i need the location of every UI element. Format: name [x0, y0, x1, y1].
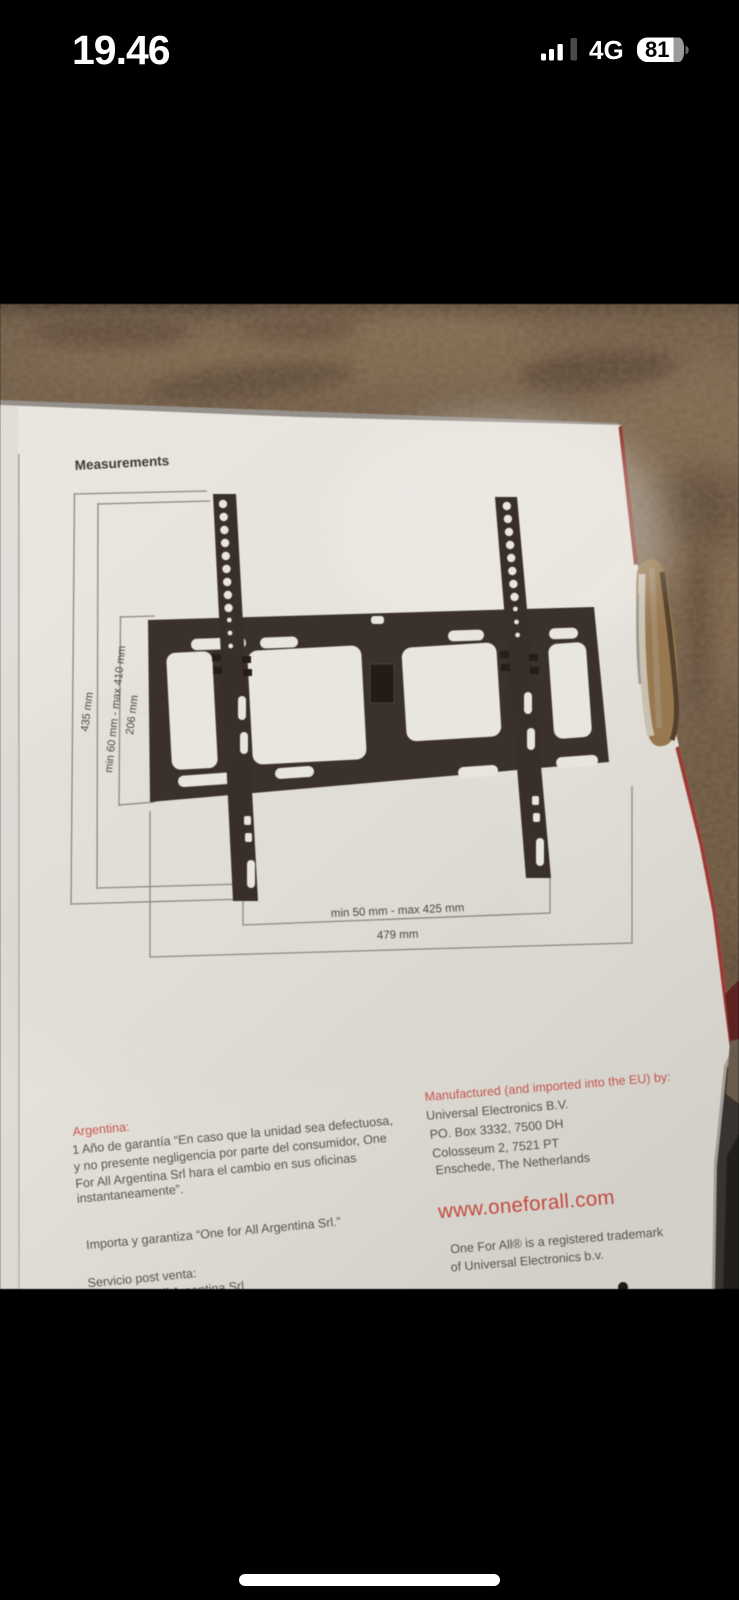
- svg-text:479 mm: 479 mm: [377, 929, 419, 942]
- svg-text:4G: 4G: [589, 35, 624, 65]
- svg-text:81: 81: [645, 37, 669, 62]
